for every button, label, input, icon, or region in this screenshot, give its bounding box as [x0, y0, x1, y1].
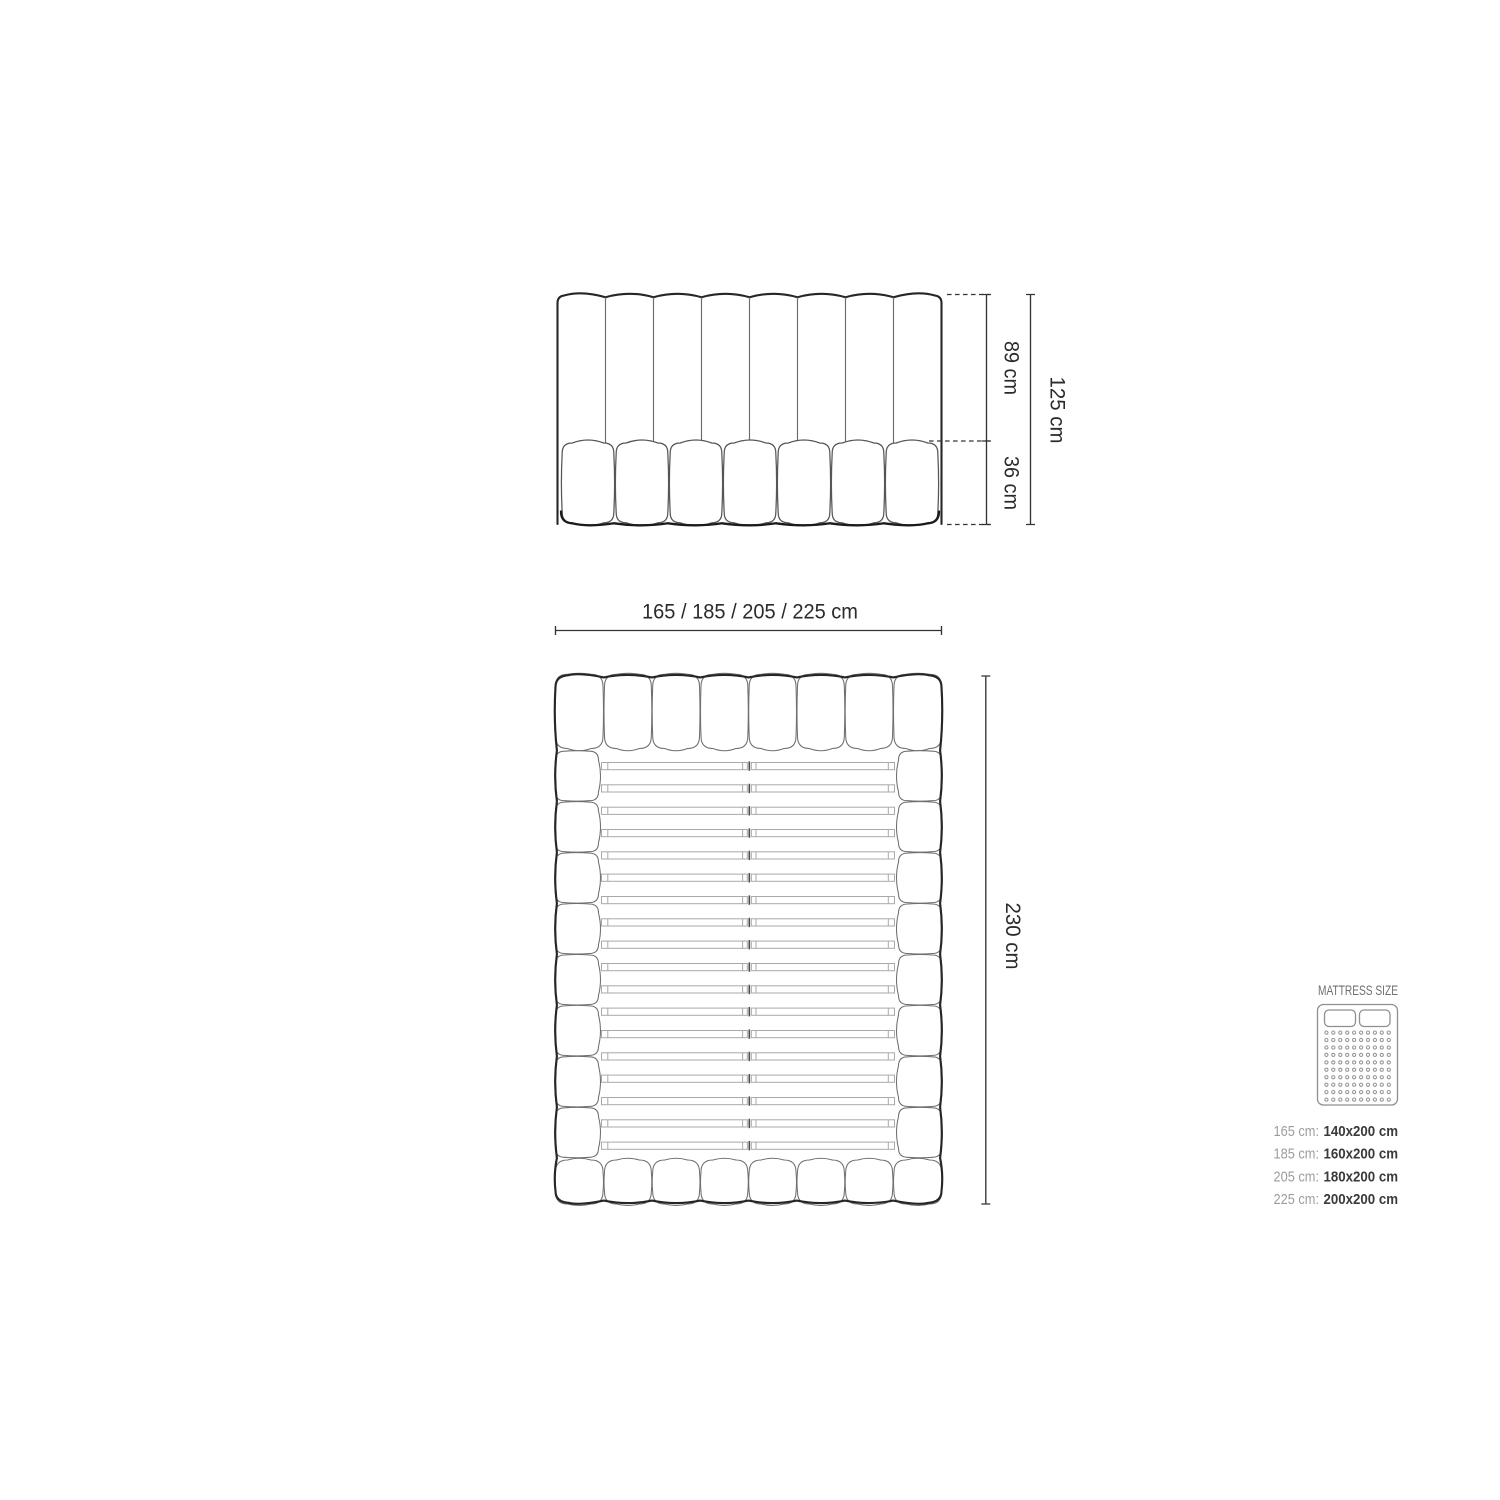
svg-text:205 cm:: 205 cm:: [1274, 1168, 1320, 1185]
svg-text:200x200 cm: 200x200 cm: [1324, 1191, 1399, 1208]
svg-text:165 / 185 / 205 / 225 cm: 165 / 185 / 205 / 225 cm: [642, 600, 858, 624]
svg-text:185 cm:: 185 cm:: [1274, 1146, 1320, 1163]
svg-text:89 cm: 89 cm: [1000, 341, 1024, 395]
svg-text:180x200 cm: 180x200 cm: [1324, 1168, 1399, 1185]
svg-text:140x200 cm: 140x200 cm: [1324, 1123, 1399, 1140]
svg-text:36 cm: 36 cm: [1000, 456, 1024, 510]
svg-text:230 cm: 230 cm: [1001, 903, 1025, 970]
svg-text:MATTRESS SIZE: MATTRESS SIZE: [1318, 983, 1398, 998]
svg-text:165 cm:: 165 cm:: [1274, 1123, 1320, 1140]
svg-text:225 cm:: 225 cm:: [1274, 1191, 1320, 1208]
svg-text:160x200 cm: 160x200 cm: [1324, 1146, 1399, 1163]
svg-text:125 cm: 125 cm: [1046, 377, 1070, 444]
